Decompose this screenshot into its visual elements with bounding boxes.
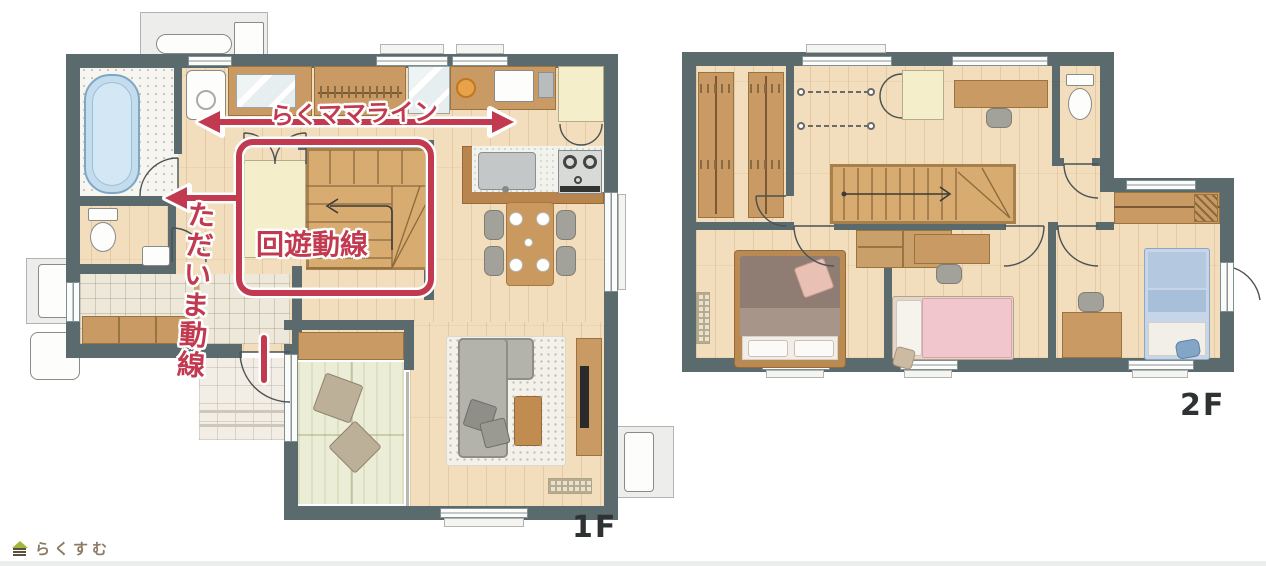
floor-label-1f: 1F xyxy=(572,510,617,545)
kaiyu-dosen-label: 回遊動線 xyxy=(256,230,368,259)
logo-house-icon xyxy=(12,541,28,556)
site-logo: らくすむ xyxy=(12,538,111,559)
floorplan-canvas: らくママライン 回遊動線 ただいま動線 1F 2F らくすむ xyxy=(0,0,1266,566)
laundry-pole-icon xyxy=(798,89,874,129)
floor-label-2f: 2F xyxy=(1180,388,1225,423)
logo-text: らくすむ xyxy=(35,538,111,559)
raku-mama-line-label: らくママライン xyxy=(270,100,439,130)
